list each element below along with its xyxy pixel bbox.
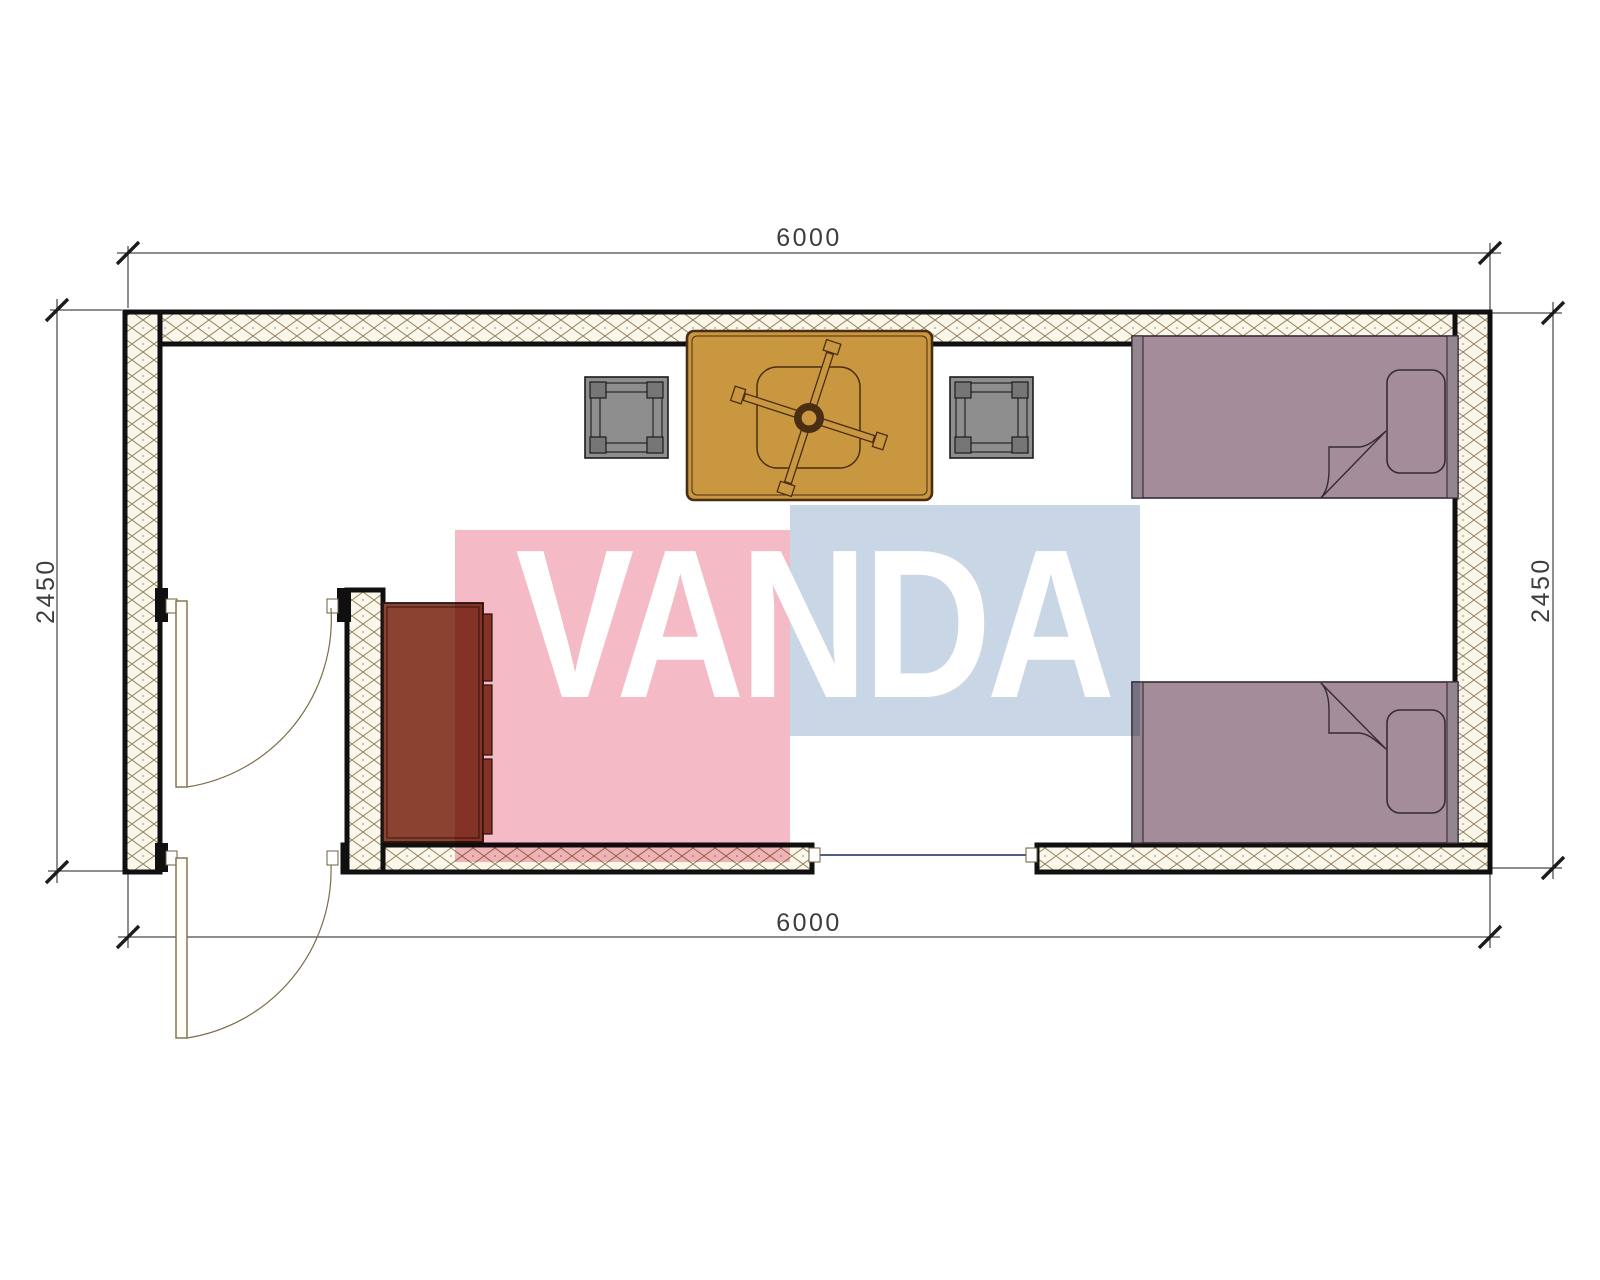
- exterior-door: [166, 851, 338, 1038]
- dimension-right-value: 2450: [1527, 557, 1555, 623]
- wall-left: [125, 312, 160, 872]
- stool-left: [585, 377, 668, 458]
- dimension-right: 2450: [1492, 302, 1564, 879]
- stool-right: [950, 377, 1033, 458]
- exterior-door-swing-arc: [187, 865, 331, 1038]
- wall-bottom-right-segment: [1037, 845, 1490, 872]
- pillow: [1387, 710, 1445, 813]
- dimension-bottom: 6000: [117, 874, 1501, 948]
- wall-right: [1455, 312, 1490, 872]
- dimension-bottom-value: 6000: [776, 909, 842, 937]
- pillow: [1387, 370, 1445, 473]
- interior-door: [166, 599, 338, 787]
- partition-wall: [347, 590, 383, 872]
- interior-door-swing-arc: [187, 608, 331, 787]
- dimension-top-value: 6000: [776, 224, 842, 252]
- exterior-door-leaf: [176, 858, 187, 1038]
- dimension-left-value: 2450: [32, 558, 60, 624]
- bed-bottom: [1132, 682, 1458, 843]
- window: [809, 848, 1037, 862]
- bed-top: [1132, 336, 1458, 498]
- watermark-logo: VANDA: [515, 518, 1076, 730]
- floor-plan-canvas: 6000 6000 2450 2450: [0, 0, 1600, 1280]
- dimension-top: 6000: [117, 224, 1501, 310]
- interior-door-leaf: [176, 601, 187, 787]
